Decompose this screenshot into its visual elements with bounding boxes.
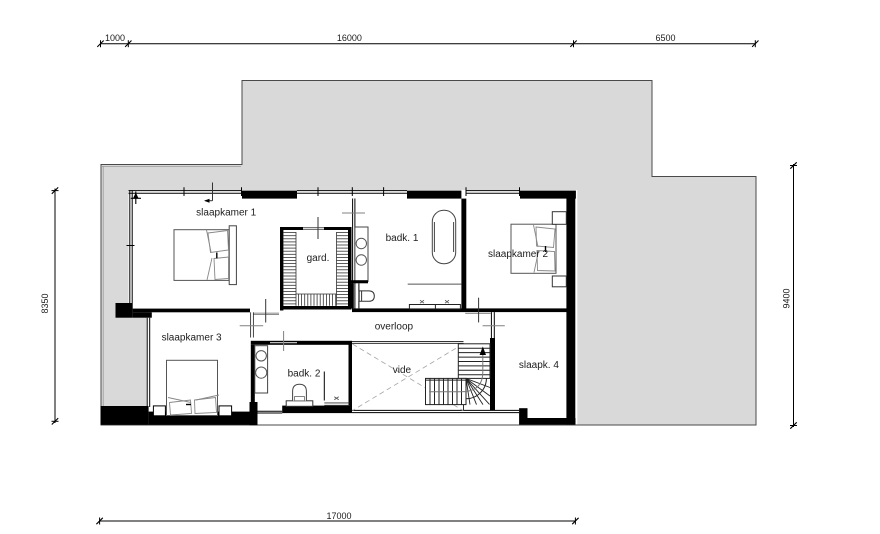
svg-text:slaapkamer 3: slaapkamer 3 [162,332,222,343]
svg-text:17000: 17000 [326,511,351,521]
svg-text:slaapkamer 1: slaapkamer 1 [196,208,256,219]
svg-text:vide: vide [393,365,412,376]
svg-text:slaapk. 4: slaapk. 4 [519,360,559,371]
svg-text:1000: 1000 [105,33,125,43]
svg-text:overloop: overloop [375,321,414,332]
svg-text:badk. 2: badk. 2 [288,368,321,379]
svg-text:badk. 1: badk. 1 [386,233,419,244]
svg-text:gard.: gard. [307,253,330,264]
svg-text:6500: 6500 [655,33,675,43]
svg-text:8350: 8350 [40,293,50,313]
svg-text:slaapkamer 2: slaapkamer 2 [488,249,548,260]
svg-text:16000: 16000 [337,33,362,43]
svg-text:9400: 9400 [781,288,791,308]
